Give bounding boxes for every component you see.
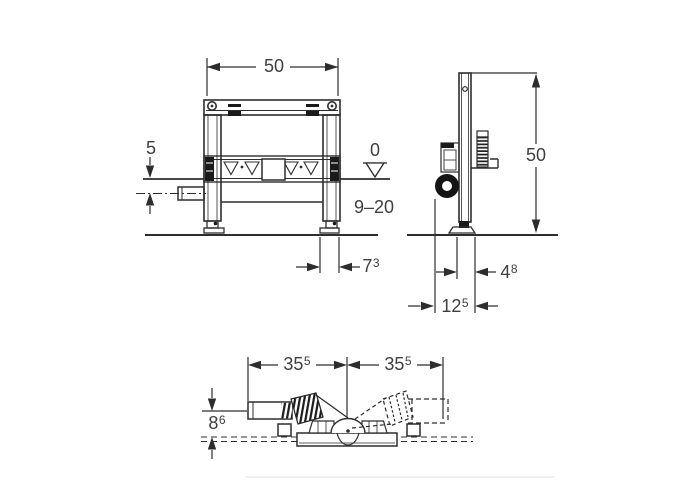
plan-right-span-label: 355 <box>383 355 412 373</box>
channel-clamp-right <box>330 157 339 181</box>
plan-drain-body <box>297 419 397 447</box>
plan-span-dimension <box>248 357 443 419</box>
front-foot-left <box>204 221 224 233</box>
plan-fixing-left <box>278 424 291 436</box>
side-foot-label: 48 <box>499 263 518 281</box>
front-drain-channel <box>204 156 340 182</box>
plan-view <box>201 357 555 477</box>
channel-center-box <box>262 159 285 180</box>
front-width-label: 50 <box>263 57 285 75</box>
side-view <box>407 73 558 313</box>
side-bracket <box>441 143 459 172</box>
side-threaded-rod <box>471 131 498 168</box>
front-foot-label: 73 <box>361 257 380 275</box>
front-inlet-pipe <box>136 187 206 200</box>
front-foot-right <box>320 221 339 233</box>
rail-hole <box>463 87 468 92</box>
drawing-canvas <box>0 0 700 500</box>
plan-ribbed-connector <box>291 393 323 424</box>
front-datum-marker <box>363 163 387 177</box>
plan-offset-label: 86 <box>207 414 226 432</box>
front-range-label: 9–20 <box>353 198 395 216</box>
side-rail <box>449 73 475 233</box>
technical-drawing-page: 50 5 0 9–20 73 50 48 125 355 355 86 cons… <box>0 0 700 500</box>
front-offset-label: 5 <box>145 139 157 157</box>
side-height-label: 50 <box>525 146 547 164</box>
side-depth-label: 125 <box>440 297 469 315</box>
plan-fixing-right <box>407 424 420 436</box>
front-offset-dimension <box>146 157 154 214</box>
front-datum-label: 0 <box>369 141 381 159</box>
front-top-rail <box>204 100 340 115</box>
channel-clamp-left <box>205 157 214 181</box>
front-foot-dimension <box>296 237 360 273</box>
front-view <box>136 58 390 273</box>
side-trap <box>435 174 459 198</box>
plan-left-span-label: 355 <box>282 355 311 373</box>
